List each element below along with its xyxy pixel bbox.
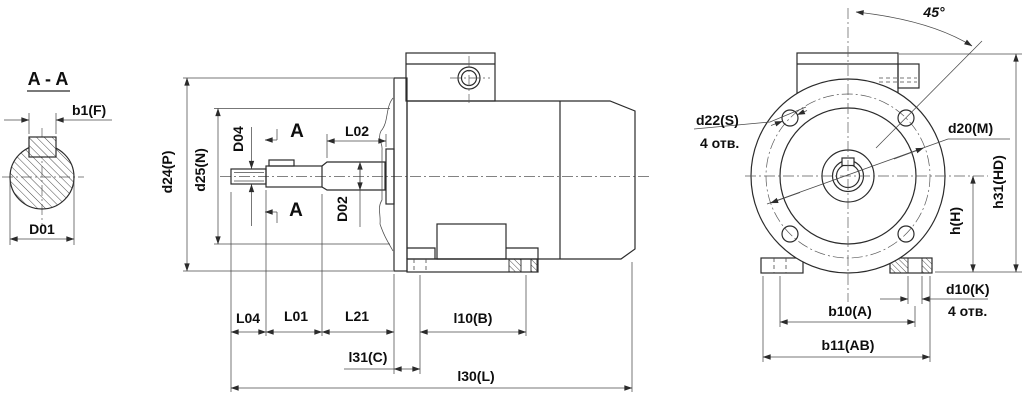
flange-disc xyxy=(394,78,407,271)
section-mark-bottom-label: A xyxy=(289,200,303,221)
cable-gland-box xyxy=(898,64,919,88)
foot-step-right xyxy=(506,248,538,259)
shaft-d02-section xyxy=(322,162,385,190)
foot-step-left xyxy=(407,248,435,259)
side-view: d24(P) d25(N) D04 L02 D02 A A xyxy=(159,53,652,392)
l31-label: l31(C) xyxy=(349,349,388,365)
foot-hole-hatch-2 xyxy=(531,259,537,272)
b10-label: b10(A) xyxy=(828,303,872,319)
l30-label: l30(L) xyxy=(457,368,494,384)
front-foot-right-hatch-2 xyxy=(922,258,932,273)
d24-label: d24(P) xyxy=(159,151,175,194)
shaft-key xyxy=(269,160,294,166)
d22-qty-label: 4 отв. xyxy=(700,135,739,151)
h-label: h(H) xyxy=(947,207,963,235)
terminal-box xyxy=(406,53,495,101)
b11-label: b11(AB) xyxy=(822,337,875,353)
l02-label: L02 xyxy=(345,123,369,139)
angle-arc xyxy=(856,12,972,46)
l10-label: l10(B) xyxy=(454,310,493,326)
motor-dimension-drawing: A - A b1(F) D01 xyxy=(0,0,1024,403)
b1-label: b1(F) xyxy=(72,102,106,118)
section-title: A - A xyxy=(28,69,69,89)
shaft-key-section xyxy=(266,166,322,187)
l01-label: L01 xyxy=(284,308,308,324)
section-view-a-a: A - A b1(F) D01 xyxy=(2,69,112,245)
l21-label: L21 xyxy=(345,308,369,324)
d25-label: d25(N) xyxy=(192,148,208,192)
d04-label: D04 xyxy=(230,126,246,152)
drawing-canvas: A - A b1(F) D01 xyxy=(0,0,1024,403)
d01-label: D01 xyxy=(29,221,55,237)
key-section xyxy=(29,137,56,157)
motor-body xyxy=(407,101,635,259)
section-mark-top-label: A xyxy=(290,121,304,142)
h31-label: h31(HD) xyxy=(990,155,1006,209)
foot-hole-hatch-1 xyxy=(509,259,521,272)
angle-label: 45° xyxy=(922,4,945,20)
d22-label: d22(S) xyxy=(696,112,739,128)
d10-label: d10(K) xyxy=(946,281,990,297)
front-foot-left xyxy=(761,258,803,273)
d20-label: d20(M) xyxy=(948,120,993,136)
l04-label: L04 xyxy=(236,310,260,326)
d10-qty-label: 4 отв. xyxy=(948,303,987,319)
foot-rib xyxy=(437,224,506,259)
d02-label: D02 xyxy=(334,196,350,222)
front-view: 45° d20(M) d22(S) 4 отв. h(H) h31(HD) d1… xyxy=(694,4,1022,362)
